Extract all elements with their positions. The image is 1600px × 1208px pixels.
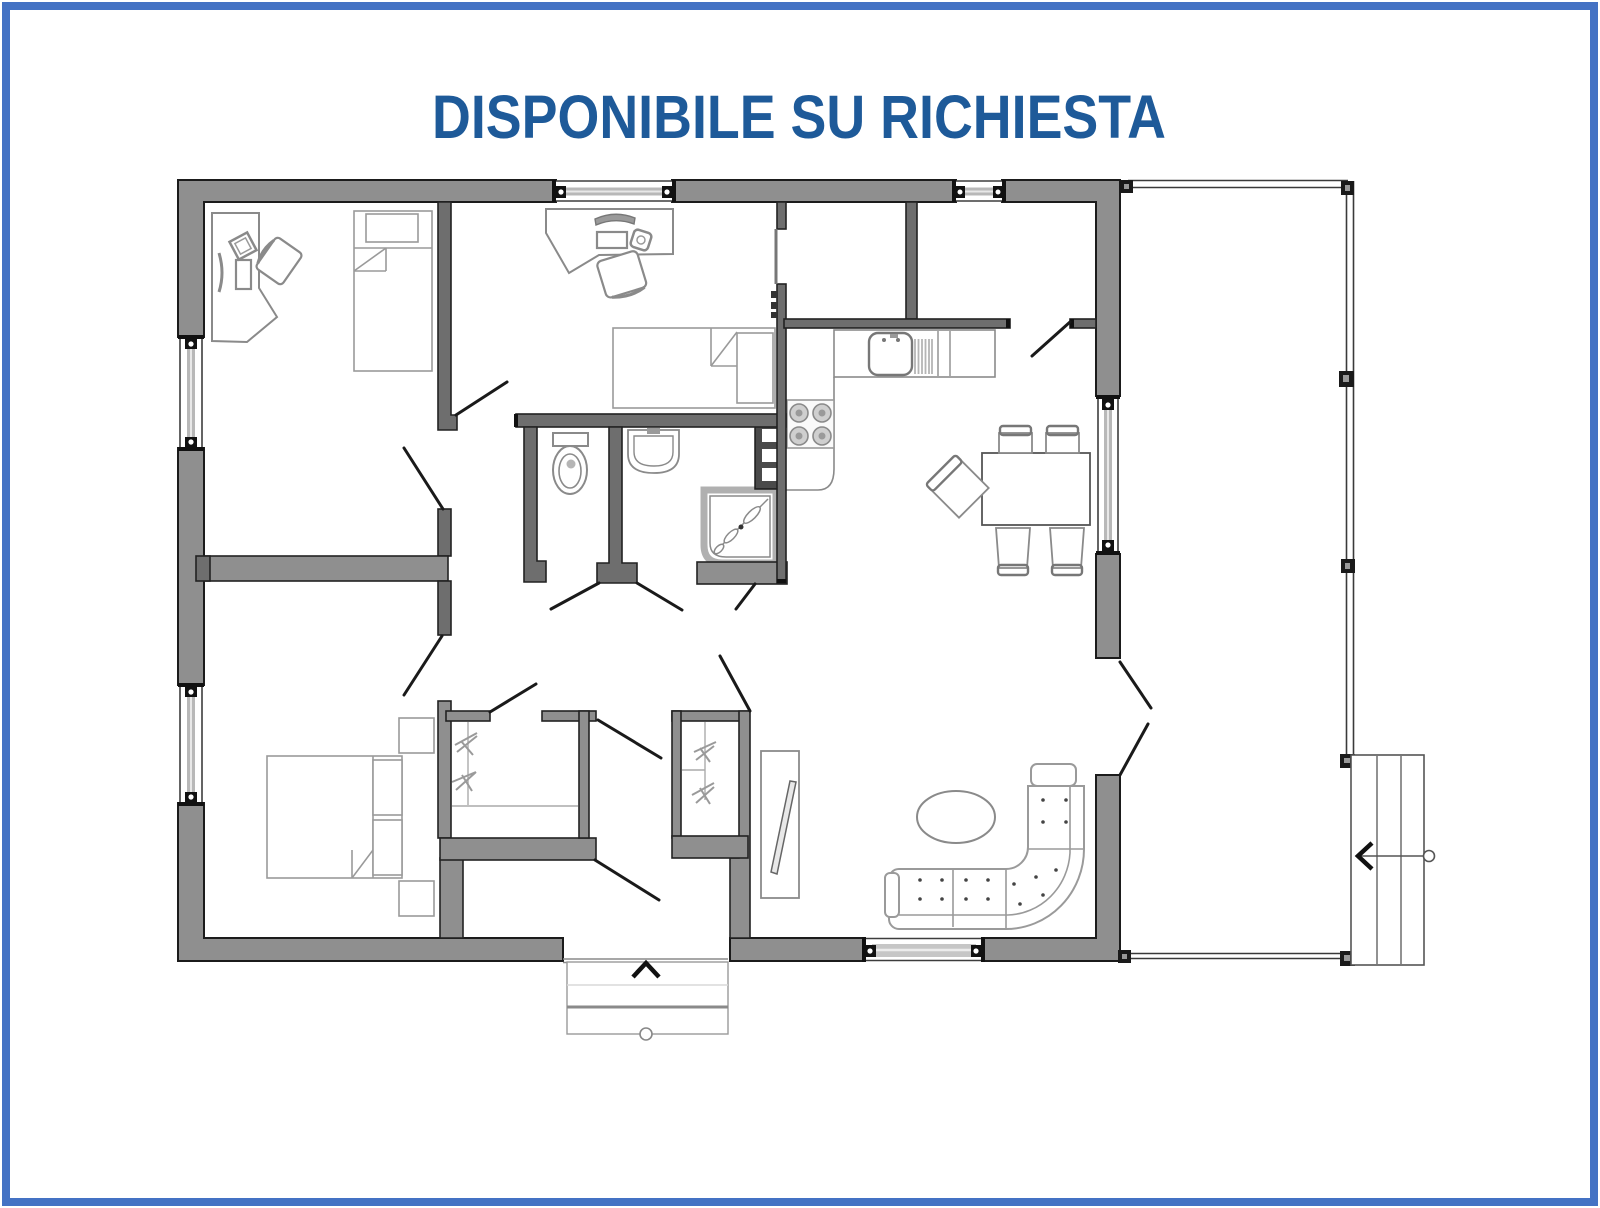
svg-text:DISPONIBILE SU RICHIESTA: DISPONIBILE SU RICHIESTA <box>432 83 1166 151</box>
